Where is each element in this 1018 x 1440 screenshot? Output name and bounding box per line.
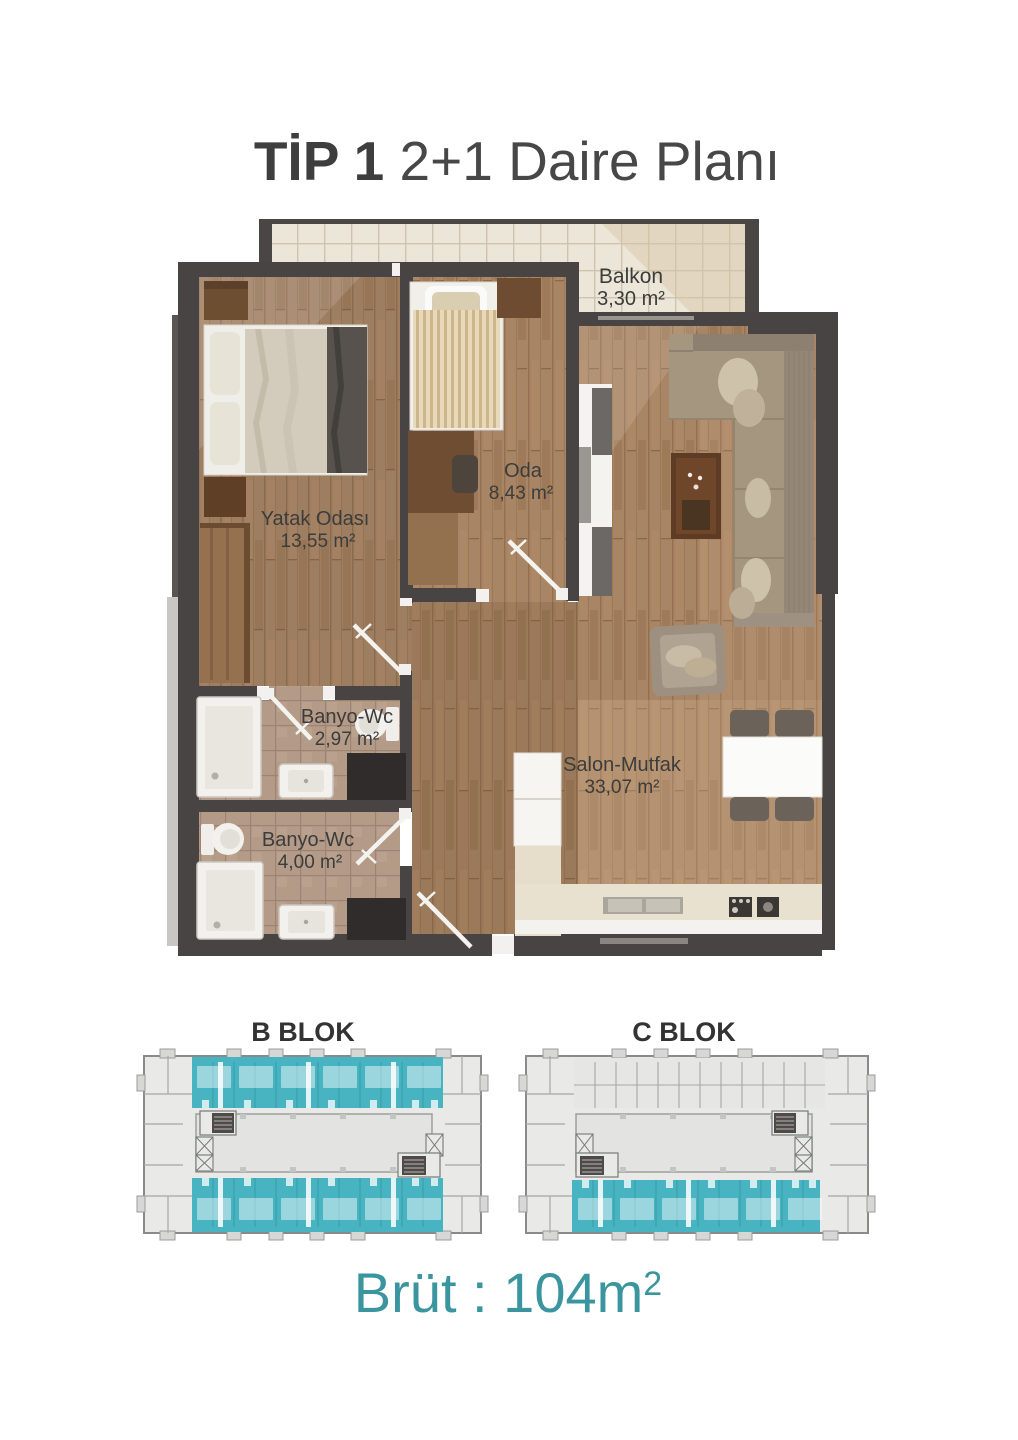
svg-text:Banyo-Wc: Banyo-Wc — [262, 829, 354, 851]
svg-text:Yatak Odası: Yatak Odası — [261, 508, 370, 530]
svg-text:Oda: Oda — [504, 460, 543, 482]
svg-text:33,07 m²: 33,07 m² — [585, 777, 660, 798]
svg-text:B BLOK: B BLOK — [251, 1017, 355, 1047]
svg-text:TİP 1 2+1 Daire Planı: TİP 1 2+1 Daire Planı — [254, 130, 780, 192]
svg-text:Banyo-Wc: Banyo-Wc — [301, 706, 393, 728]
svg-text:3,30 m²: 3,30 m² — [597, 288, 665, 310]
svg-text:Salon-Mutfak: Salon-Mutfak — [563, 754, 682, 776]
svg-text:C BLOK: C BLOK — [632, 1017, 736, 1047]
svg-text:2,97 m²: 2,97 m² — [315, 729, 379, 750]
svg-text:13,55 m²: 13,55 m² — [281, 531, 356, 552]
svg-text:4,00 m²: 4,00 m² — [278, 852, 342, 873]
svg-text:Brüt : 104m2: Brüt : 104m2 — [354, 1261, 662, 1324]
svg-text:Balkon: Balkon — [599, 265, 663, 288]
svg-text:8,43 m²: 8,43 m² — [489, 483, 553, 504]
